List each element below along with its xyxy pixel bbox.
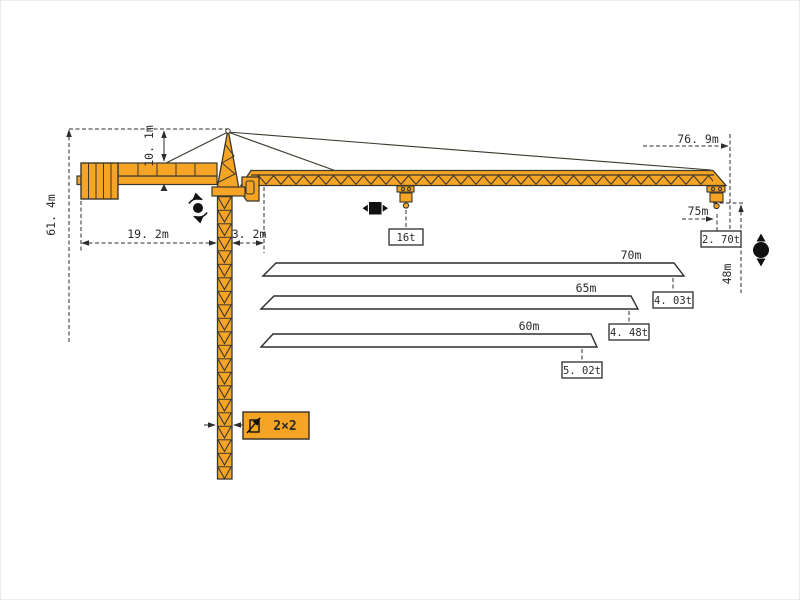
trolley-tip (707, 186, 725, 209)
jib-option-length: 70m (621, 248, 642, 262)
counter-jib-platform (118, 163, 217, 176)
slewing-dot (193, 203, 203, 213)
dim-jib-root-offset-label: 3. 2m (232, 227, 267, 241)
trolley-frame (707, 186, 725, 192)
trolley-frame (397, 186, 414, 192)
jib-option-shape (261, 296, 638, 309)
crane-diagram-svg: 61. 4m 10. 1m 19. 2m 3. 2m 76. 9m 75m 48… (1, 1, 800, 600)
jib-option-shape (263, 263, 684, 276)
slewing-arrow-top (189, 199, 202, 204)
hook (714, 203, 719, 208)
trolley-mid (397, 186, 414, 208)
tip-load-box: 2. 70t (701, 231, 741, 247)
counterweight-block (81, 163, 118, 199)
mast-section-value: 2×2 (273, 419, 296, 434)
counter-jib (77, 163, 217, 199)
max-load-value: 16t (397, 232, 416, 244)
jib-option-tip-load: 5. 02t (563, 365, 601, 377)
jib-option-length: 60m (519, 319, 540, 333)
mast-section-badge: 2×2 (243, 412, 309, 439)
dim-jib-reach-label: 76. 9m (677, 132, 719, 146)
trolley-wheel (718, 187, 721, 190)
hoisting-icon (753, 234, 769, 267)
hoist-arrow-up (757, 234, 766, 242)
max-load-box: 16t (389, 229, 423, 245)
jib-option-60m: 60m 5. 02t (261, 319, 602, 378)
jib-lattice (251, 175, 713, 186)
trolley-wheel (401, 187, 404, 190)
trolley-wheel (711, 187, 714, 190)
mast-lattice (218, 196, 233, 479)
slewing-icon (189, 199, 207, 218)
rear-tie-bar (164, 132, 228, 164)
hook-block (400, 193, 412, 202)
tower-mast (218, 196, 233, 479)
jib-option-length: 65m (576, 281, 597, 295)
dim-head-height-label: 10. 1m (142, 125, 156, 167)
jib-option-tip-load: 4. 48t (610, 327, 648, 339)
dim-max-radius-label: 75m (688, 204, 709, 218)
trolley-wheel (407, 187, 410, 190)
jib-option-65m: 65m 4. 48t (261, 281, 649, 340)
jib (241, 171, 726, 186)
trolley-square (369, 202, 382, 215)
front-tie-bar-outer (228, 132, 711, 170)
front-tie-bar-inner (228, 132, 339, 172)
trolley-arrow-right (383, 205, 388, 212)
trolley-travel-icon (363, 202, 389, 215)
hook-block (710, 193, 723, 202)
hoist-dot (753, 242, 769, 258)
trolley-arrow-left (363, 205, 368, 212)
dim-total-height-label: 61. 4m (44, 194, 58, 236)
cab-window (246, 181, 254, 194)
dim-counter-jib-label: 19. 2m (127, 227, 169, 241)
tower-head (217, 129, 239, 189)
tip-load-value: 2. 70t (702, 234, 740, 246)
tie-bars (164, 132, 711, 172)
jib-option-shape (261, 334, 597, 347)
hook (403, 203, 408, 208)
crane-spec-diagram: 61. 4m 10. 1m 19. 2m 3. 2m 76. 9m 75m 48… (0, 0, 800, 600)
slewing-arrow-bottom (194, 213, 207, 218)
jib-option-tip-load: 4. 03t (654, 295, 692, 307)
hoist-arrow-down (757, 259, 766, 267)
dim-hook-height-label: 48m (720, 264, 734, 285)
turntable (212, 187, 245, 196)
